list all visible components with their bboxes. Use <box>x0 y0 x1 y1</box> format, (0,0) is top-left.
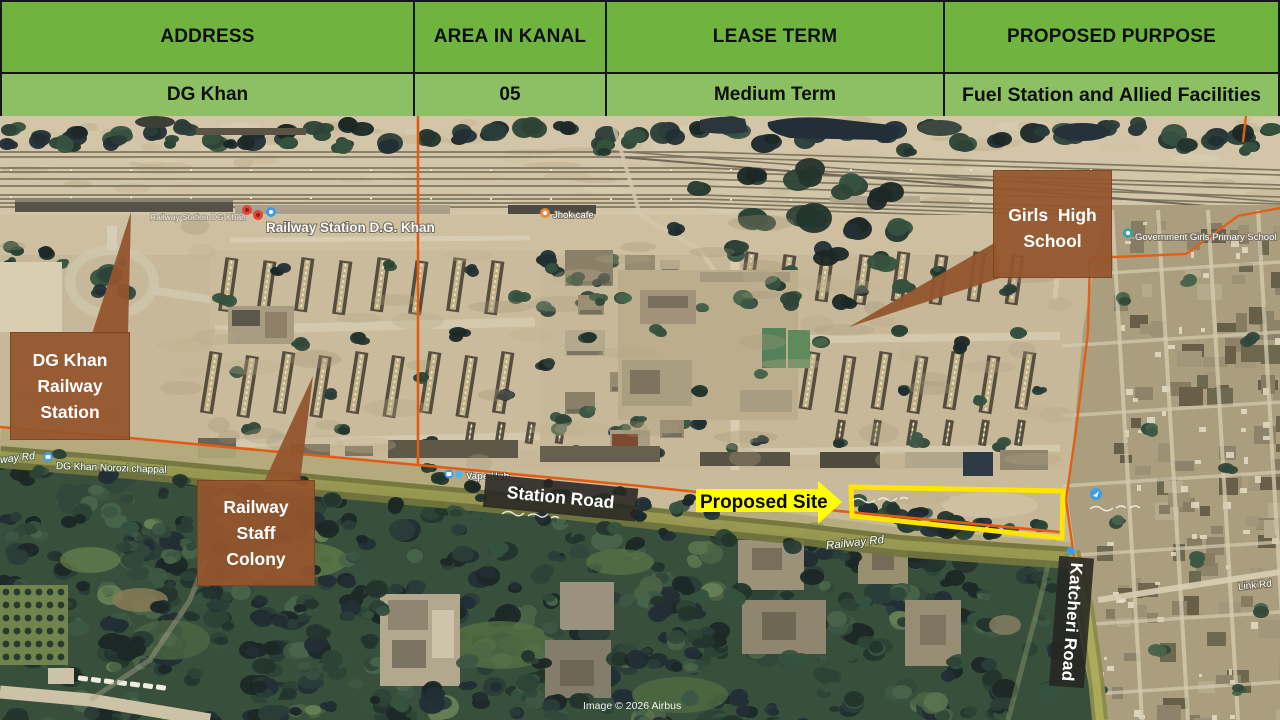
svg-text:Proposed Site: Proposed Site <box>700 492 828 513</box>
